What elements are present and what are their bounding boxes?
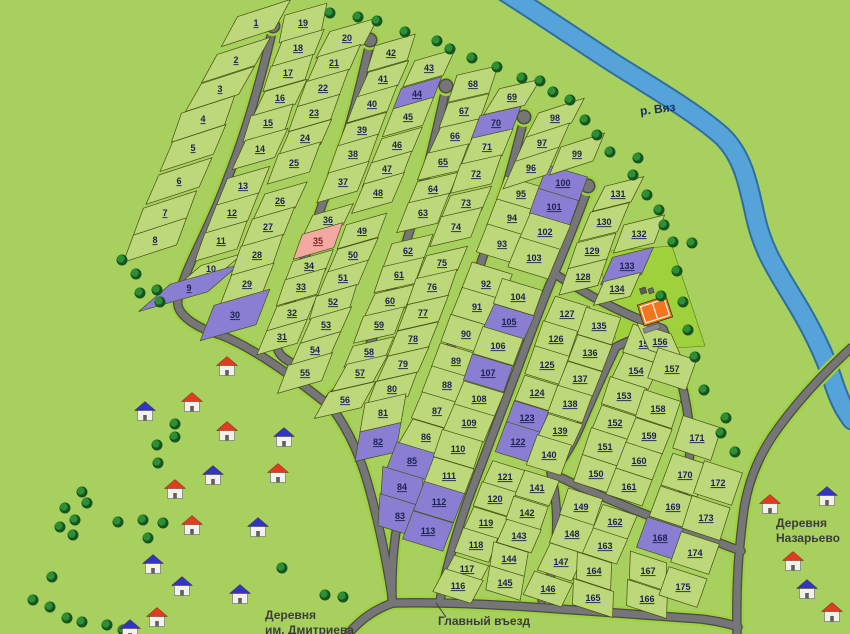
- tree-icon: [131, 269, 142, 280]
- plot-number-2: 2: [233, 55, 238, 65]
- plot-number-61: 61: [394, 270, 404, 280]
- plot-number-22: 22: [318, 83, 328, 93]
- plot-number-90: 90: [461, 329, 471, 339]
- plot-number-104: 104: [510, 292, 525, 302]
- plot-number-103: 103: [526, 253, 541, 263]
- plot-number-110: 110: [451, 444, 466, 454]
- tree-icon: [153, 458, 164, 469]
- plot-number-64: 64: [428, 184, 438, 194]
- plot-number-17: 17: [283, 68, 293, 78]
- village-nazaryevo-label: Деревня Назарьево: [776, 516, 840, 546]
- plot-number-3: 3: [217, 84, 222, 94]
- tree-icon: [730, 447, 741, 458]
- plot-number-34: 34: [304, 261, 314, 271]
- plot-number-135: 135: [591, 321, 606, 331]
- plot-number-74: 74: [451, 222, 461, 232]
- plot-number-150: 150: [588, 469, 603, 479]
- plot-number-154: 154: [628, 366, 643, 376]
- plot-number-146: 146: [540, 584, 555, 594]
- plot-number-125: 125: [539, 360, 554, 370]
- plot-number-16: 16: [275, 93, 285, 103]
- plot-number-175: 175: [675, 582, 690, 592]
- tree-icon: [325, 8, 336, 19]
- plot-number-93: 93: [497, 239, 507, 249]
- plot-number-126: 126: [548, 334, 563, 344]
- plot-number-107: 107: [480, 368, 495, 378]
- tree-icon: [47, 572, 58, 583]
- plot-number-132: 132: [631, 229, 646, 239]
- plot-number-78: 78: [408, 334, 418, 344]
- tree-icon: [565, 95, 576, 106]
- plot-number-5: 5: [190, 143, 195, 153]
- plot-number-162: 162: [607, 517, 622, 527]
- plot-number-48: 48: [373, 188, 383, 198]
- plot-number-50: 50: [348, 250, 358, 260]
- plot-number-82: 82: [373, 437, 383, 447]
- plot-number-29: 29: [242, 279, 252, 289]
- masterplan-map: 1234567819181716151413121110920212223242…: [0, 0, 850, 634]
- tree-icon: [654, 205, 665, 216]
- plot-number-117: 117: [460, 564, 475, 574]
- plot-number-139: 139: [552, 426, 567, 436]
- plot-number-133: 133: [619, 261, 634, 271]
- plot-number-163: 163: [597, 541, 612, 551]
- plot-number-131: 131: [610, 189, 625, 199]
- tree-icon: [135, 288, 146, 299]
- plot-number-79: 79: [398, 359, 408, 369]
- plot-number-77: 77: [418, 308, 428, 318]
- plot-number-62: 62: [403, 246, 413, 256]
- tree-icon: [320, 590, 331, 601]
- tree-icon: [77, 487, 88, 498]
- tree-icon: [642, 190, 653, 201]
- plot-number-53: 53: [321, 320, 331, 330]
- plot-number-23: 23: [309, 108, 319, 118]
- plot-number-119: 119: [479, 518, 494, 528]
- plot-number-51: 51: [338, 273, 348, 283]
- tree-icon: [432, 36, 443, 47]
- plot-number-45: 45: [403, 112, 413, 122]
- plot-number-141: 141: [529, 483, 544, 493]
- plot-number-98: 98: [550, 113, 560, 123]
- plot-number-80: 80: [387, 384, 397, 394]
- plot-number-156: 156: [652, 337, 667, 347]
- plot-number-88: 88: [442, 380, 452, 390]
- tree-icon: [113, 517, 124, 528]
- plot-number-158: 158: [650, 404, 665, 414]
- tree-icon: [55, 522, 66, 533]
- plot-number-84: 84: [397, 482, 407, 492]
- plot-number-127: 127: [559, 309, 574, 319]
- plot-number-7: 7: [162, 208, 167, 218]
- plot-number-73: 73: [461, 198, 471, 208]
- plot-number-168: 168: [652, 533, 667, 543]
- plot-number-20: 20: [342, 33, 352, 43]
- plot-number-81: 81: [378, 408, 388, 418]
- plot-number-167: 167: [640, 566, 655, 576]
- plot-number-76: 76: [427, 282, 437, 292]
- plot-number-9: 9: [186, 283, 191, 293]
- plot-number-39: 39: [357, 125, 367, 135]
- plot-number-4: 4: [200, 114, 205, 124]
- plot-number-170: 170: [677, 470, 692, 480]
- tree-icon: [517, 73, 528, 84]
- tree-icon: [62, 613, 73, 624]
- plot-number-40: 40: [367, 99, 377, 109]
- plot-number-46: 46: [392, 140, 402, 150]
- plot-number-137: 137: [572, 374, 587, 384]
- tree-icon: [548, 87, 559, 98]
- plot-number-72: 72: [471, 169, 481, 179]
- tree-icon: [170, 419, 181, 430]
- plot-number-145: 145: [497, 578, 512, 588]
- tree-icon: [678, 297, 689, 308]
- plot-number-55: 55: [300, 368, 310, 378]
- tree-icon: [716, 428, 727, 439]
- plot-number-56: 56: [340, 395, 350, 405]
- plot-number-1: 1: [253, 18, 258, 28]
- plot-number-58: 58: [364, 347, 374, 357]
- plot-number-121: 121: [497, 472, 512, 482]
- tree-icon: [445, 44, 456, 55]
- plot-number-172: 172: [710, 478, 725, 488]
- plot-number-111: 111: [442, 471, 456, 481]
- plot-number-83: 83: [395, 511, 405, 521]
- plot-number-174: 174: [687, 548, 702, 558]
- plot-number-42: 42: [386, 48, 396, 58]
- plot-number-8: 8: [152, 235, 157, 245]
- plot-number-19: 19: [298, 18, 308, 28]
- plot-number-140: 140: [541, 450, 556, 460]
- plot-number-69: 69: [507, 92, 517, 102]
- tree-icon: [70, 515, 81, 526]
- plot-number-28: 28: [252, 250, 262, 260]
- plot-number-143: 143: [511, 531, 526, 541]
- plot-number-12: 12: [227, 208, 237, 218]
- plot-number-36: 36: [323, 215, 333, 225]
- plot-number-26: 26: [275, 196, 285, 206]
- plot-number-94: 94: [507, 213, 517, 223]
- tree-icon: [535, 76, 546, 87]
- plot-number-35: 35: [313, 236, 323, 246]
- plot-number-118: 118: [469, 540, 484, 550]
- plot-number-151: 151: [597, 442, 612, 452]
- tree-icon: [628, 170, 639, 181]
- tree-icon: [656, 291, 667, 302]
- tree-icon: [117, 255, 128, 266]
- plot-number-68: 68: [468, 79, 478, 89]
- plot-number-87: 87: [432, 406, 442, 416]
- main-entrance-label: Главный въезд: [438, 614, 530, 629]
- plot-number-165: 165: [585, 593, 600, 603]
- plot-number-75: 75: [437, 258, 447, 268]
- plot-number-86: 86: [421, 432, 431, 442]
- tree-icon: [338, 592, 349, 603]
- plot-number-71: 71: [482, 142, 492, 152]
- tree-icon: [102, 620, 113, 631]
- tree-icon: [82, 498, 93, 509]
- plot-number-161: 161: [621, 482, 636, 492]
- plot-number-31: 31: [277, 332, 287, 342]
- tree-icon: [467, 53, 478, 64]
- plot-number-65: 65: [438, 157, 448, 167]
- plot-number-66: 66: [450, 131, 460, 141]
- plot-number-173: 173: [698, 513, 713, 523]
- plot-number-32: 32: [287, 308, 297, 318]
- plot-number-105: 105: [501, 317, 516, 327]
- tree-icon: [28, 595, 39, 606]
- tree-icon: [68, 530, 79, 541]
- plot-number-38: 38: [348, 149, 358, 159]
- plot-number-102: 102: [537, 227, 552, 237]
- plot-number-43: 43: [424, 63, 434, 73]
- plot-number-122: 122: [510, 437, 525, 447]
- tree-icon: [60, 503, 71, 514]
- plot-number-25: 25: [289, 158, 299, 168]
- tree-icon: [143, 533, 154, 544]
- tree-icon: [277, 563, 288, 574]
- tree-icon: [687, 238, 698, 249]
- plot-number-171: 171: [689, 433, 704, 443]
- tree-icon: [690, 352, 701, 363]
- plot-number-124: 124: [529, 388, 544, 398]
- plot-number-116: 116: [451, 581, 466, 591]
- plot-number-138: 138: [562, 399, 577, 409]
- plot-number-6: 6: [176, 176, 181, 186]
- plot-number-130: 130: [596, 217, 611, 227]
- plot-number-18: 18: [293, 43, 303, 53]
- plot-number-113: 113: [421, 526, 436, 536]
- plot-number-13: 13: [238, 181, 248, 191]
- plot-number-147: 147: [553, 557, 568, 567]
- plot-number-47: 47: [382, 164, 392, 174]
- tree-icon: [152, 440, 163, 451]
- plot-number-70: 70: [491, 118, 501, 128]
- plot-number-85: 85: [407, 456, 417, 466]
- plot-number-128: 128: [575, 272, 590, 282]
- village-dmitrieva-label: Деревня им. Дмитриева: [265, 608, 354, 634]
- plot-number-52: 52: [328, 297, 338, 307]
- plot-number-169: 169: [665, 502, 680, 512]
- plot-number-91: 91: [472, 302, 482, 312]
- plot-number-14: 14: [255, 144, 265, 154]
- tree-icon: [77, 617, 88, 628]
- tree-icon: [400, 27, 411, 38]
- tree-icon: [592, 130, 603, 141]
- plot-number-101: 101: [546, 202, 561, 212]
- plot-number-129: 129: [584, 246, 599, 256]
- plot-number-54: 54: [310, 345, 320, 355]
- tree-icon: [580, 115, 591, 126]
- plot-number-159: 159: [641, 431, 656, 441]
- plot-number-164: 164: [586, 566, 601, 576]
- tree-icon: [699, 385, 710, 396]
- plot-number-160: 160: [631, 456, 646, 466]
- tree-icon: [633, 153, 644, 164]
- tree-icon: [158, 518, 169, 529]
- plot-number-96: 96: [526, 163, 536, 173]
- tree-icon: [45, 602, 56, 613]
- plot-number-63: 63: [418, 208, 428, 218]
- plot-number-100: 100: [555, 178, 570, 188]
- plot-number-24: 24: [300, 133, 310, 143]
- tree-icon: [668, 237, 679, 248]
- plot-number-89: 89: [451, 356, 461, 366]
- plot-number-120: 120: [487, 494, 502, 504]
- plot-number-41: 41: [378, 74, 388, 84]
- tree-icon: [372, 16, 383, 27]
- plot-number-106: 106: [490, 341, 505, 351]
- plot-number-44: 44: [412, 89, 422, 99]
- plot-number-149: 149: [573, 502, 588, 512]
- plot-number-37: 37: [338, 177, 348, 187]
- plot-number-148: 148: [564, 529, 579, 539]
- tree-icon: [659, 220, 670, 231]
- plot-number-15: 15: [263, 118, 273, 128]
- tree-icon: [721, 413, 732, 424]
- tree-icon: [605, 147, 616, 158]
- plot-number-49: 49: [357, 226, 367, 236]
- plot-number-60: 60: [385, 296, 395, 306]
- plot-number-95: 95: [516, 189, 526, 199]
- plot-number-152: 152: [607, 418, 622, 428]
- plot-number-11: 11: [216, 236, 226, 246]
- plot-number-99: 99: [572, 149, 582, 159]
- tree-icon: [353, 12, 364, 23]
- map-canvas: 1234567819181716151413121110920212223242…: [0, 0, 850, 634]
- tree-icon: [152, 285, 163, 296]
- tree-icon: [672, 266, 683, 277]
- plot-number-59: 59: [374, 320, 384, 330]
- plot-number-134: 134: [609, 284, 624, 294]
- plot-number-97: 97: [537, 138, 547, 148]
- plot-number-123: 123: [519, 413, 534, 423]
- plot-number-21: 21: [329, 58, 339, 68]
- plot-number-112: 112: [432, 497, 447, 507]
- plot-number-27: 27: [263, 222, 273, 232]
- plot-number-108: 108: [471, 394, 486, 404]
- plot-number-109: 109: [461, 418, 476, 428]
- plot-number-30: 30: [230, 310, 240, 320]
- plot-number-144: 144: [501, 554, 516, 564]
- plot-number-166: 166: [639, 594, 654, 604]
- plot-number-57: 57: [355, 368, 365, 378]
- plot-number-67: 67: [459, 106, 469, 116]
- tree-icon: [170, 432, 181, 443]
- tree-icon: [492, 62, 503, 73]
- tree-icon: [138, 515, 149, 526]
- tree-icon: [683, 325, 694, 336]
- plot-number-153: 153: [616, 391, 631, 401]
- plot-number-157: 157: [664, 364, 679, 374]
- tree-icon: [155, 297, 166, 308]
- plot-number-92: 92: [481, 279, 491, 289]
- plot-number-142: 142: [519, 508, 534, 518]
- plot-number-136: 136: [582, 348, 597, 358]
- plot-number-33: 33: [296, 282, 306, 292]
